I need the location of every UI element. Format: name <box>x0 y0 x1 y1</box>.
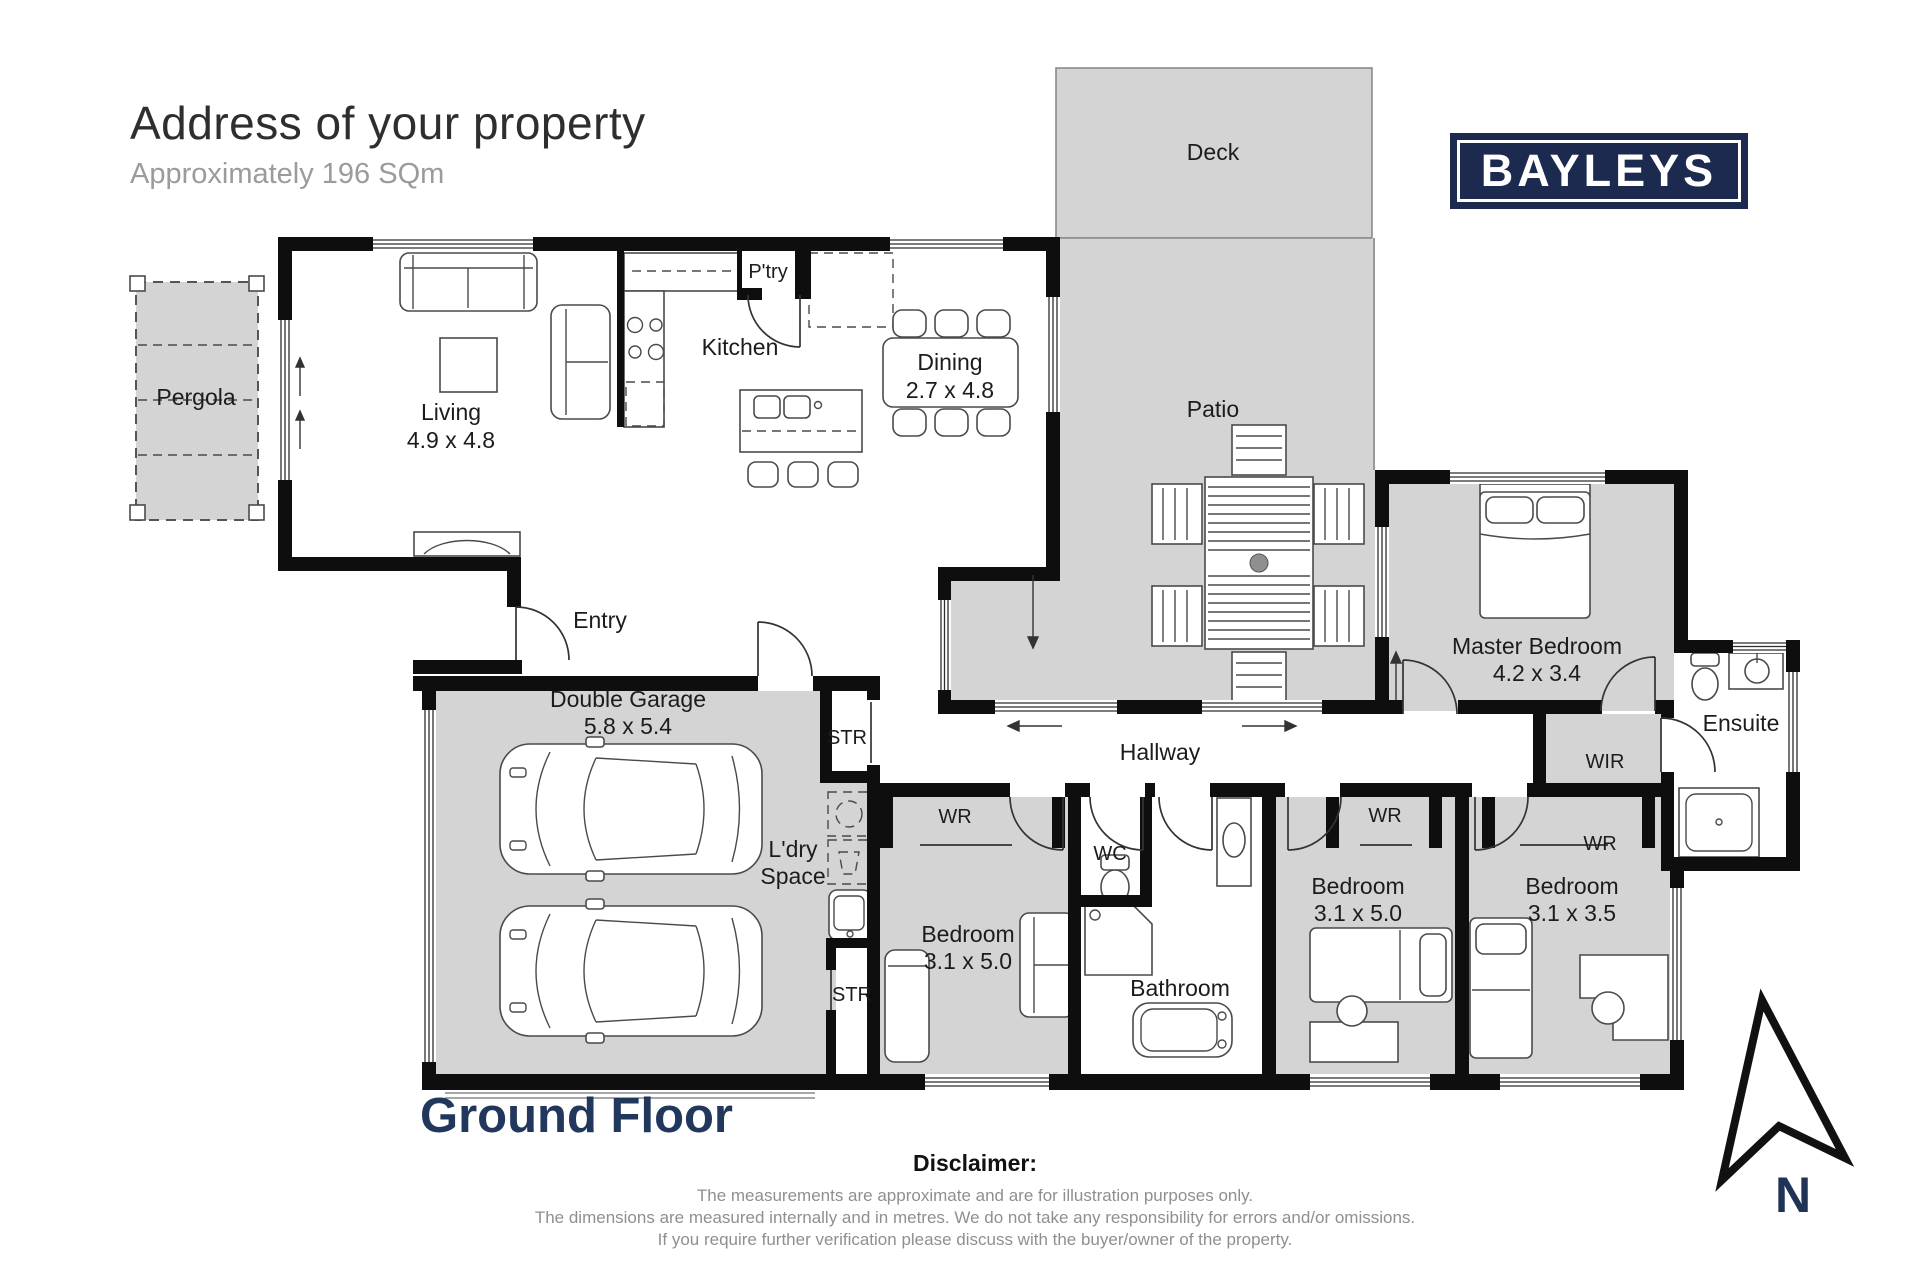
master-furniture <box>1480 484 1590 618</box>
scullery-dashed <box>809 253 893 327</box>
garage-door <box>758 622 812 676</box>
window <box>995 700 1117 714</box>
floor-label: Ground Floor <box>420 1088 733 1144</box>
label-str-top: STR <box>827 727 867 749</box>
label-bedroom2: Bedroom <box>1311 873 1404 899</box>
label-bedroom1: Bedroom <box>921 921 1014 947</box>
compass-needle <box>1722 1000 1845 1180</box>
label-dining-dims: 2.7 x 4.8 <box>906 377 994 403</box>
stool <box>788 462 818 487</box>
label-dining: Dining <box>917 349 982 375</box>
label-garage-dims: 5.8 x 5.4 <box>584 713 672 739</box>
window <box>1786 672 1800 772</box>
label-wc: WC <box>1093 843 1126 865</box>
compass-n: N <box>1775 1167 1811 1223</box>
north-arrow: N <box>1722 1000 1845 1223</box>
label-laundry-2: Space <box>760 863 825 889</box>
label-entry: Entry <box>573 607 627 633</box>
window <box>373 237 533 251</box>
label-garage: Double Garage <box>550 686 706 712</box>
window <box>1375 527 1389 637</box>
floorplan-page: Address of your property Approximately 1… <box>0 0 1920 1280</box>
label-deck: Deck <box>1187 139 1240 165</box>
label-wr2: WR <box>1368 805 1401 827</box>
window <box>1310 1074 1430 1090</box>
disclaimer-line-3: If you require further verification plea… <box>658 1230 1293 1250</box>
bathroom-door <box>1159 797 1212 850</box>
window <box>938 600 951 690</box>
ensuite-fixtures <box>1679 653 1783 857</box>
str-bottom-area <box>836 948 867 1074</box>
window <box>422 710 436 1062</box>
label-bedroom3-dims: 3.1 x 3.5 <box>1528 900 1616 926</box>
label-pergola: Pergola <box>156 384 235 410</box>
window <box>925 1074 1049 1090</box>
label-ensuite: Ensuite <box>1703 710 1780 736</box>
window <box>278 320 292 480</box>
label-bedroom1-dims: 3.1 x 5.0 <box>924 948 1012 974</box>
label-laundry-1: L'dry <box>768 836 818 862</box>
label-wr3: WR <box>1583 833 1616 855</box>
label-living: Living <box>421 399 481 425</box>
stool <box>748 462 778 487</box>
label-bedroom3: Bedroom <box>1525 873 1618 899</box>
label-bathroom: Bathroom <box>1130 975 1230 1001</box>
label-master-dims: 4.2 x 3.4 <box>1493 660 1581 686</box>
disclaimer-line-1: The measurements are approximate and are… <box>697 1186 1253 1206</box>
label-bedroom2-dims: 3.1 x 5.0 <box>1314 900 1402 926</box>
label-kitchen: Kitchen <box>702 334 779 360</box>
label-str-bottom: STR <box>832 984 872 1006</box>
car-1 <box>500 737 762 881</box>
entry-door <box>516 607 569 660</box>
window <box>1046 297 1060 412</box>
disclaimer-heading: Disclaimer: <box>913 1150 1037 1177</box>
window <box>1733 640 1786 653</box>
bathroom-fixtures <box>1085 798 1251 1057</box>
car-2 <box>500 899 762 1043</box>
label-wr1: WR <box>938 806 971 828</box>
window <box>1670 888 1684 1040</box>
floorplan-drawing: Deck Patio Pergola Living 4.9 x 4.8 Kitc… <box>0 0 1920 1280</box>
disclaimer-line-2: The dimensions are measured internally a… <box>535 1208 1415 1228</box>
window <box>1202 700 1322 714</box>
stool <box>828 462 858 487</box>
window <box>1450 470 1605 484</box>
label-living-dims: 4.9 x 4.8 <box>407 427 495 453</box>
label-wir: WIR <box>1586 751 1625 773</box>
label-hallway: Hallway <box>1120 739 1201 765</box>
window <box>890 237 1003 251</box>
label-master: Master Bedroom <box>1452 633 1622 659</box>
window <box>1500 1074 1640 1090</box>
label-patio: Patio <box>1187 396 1239 422</box>
label-pantry: P'try <box>748 261 787 283</box>
